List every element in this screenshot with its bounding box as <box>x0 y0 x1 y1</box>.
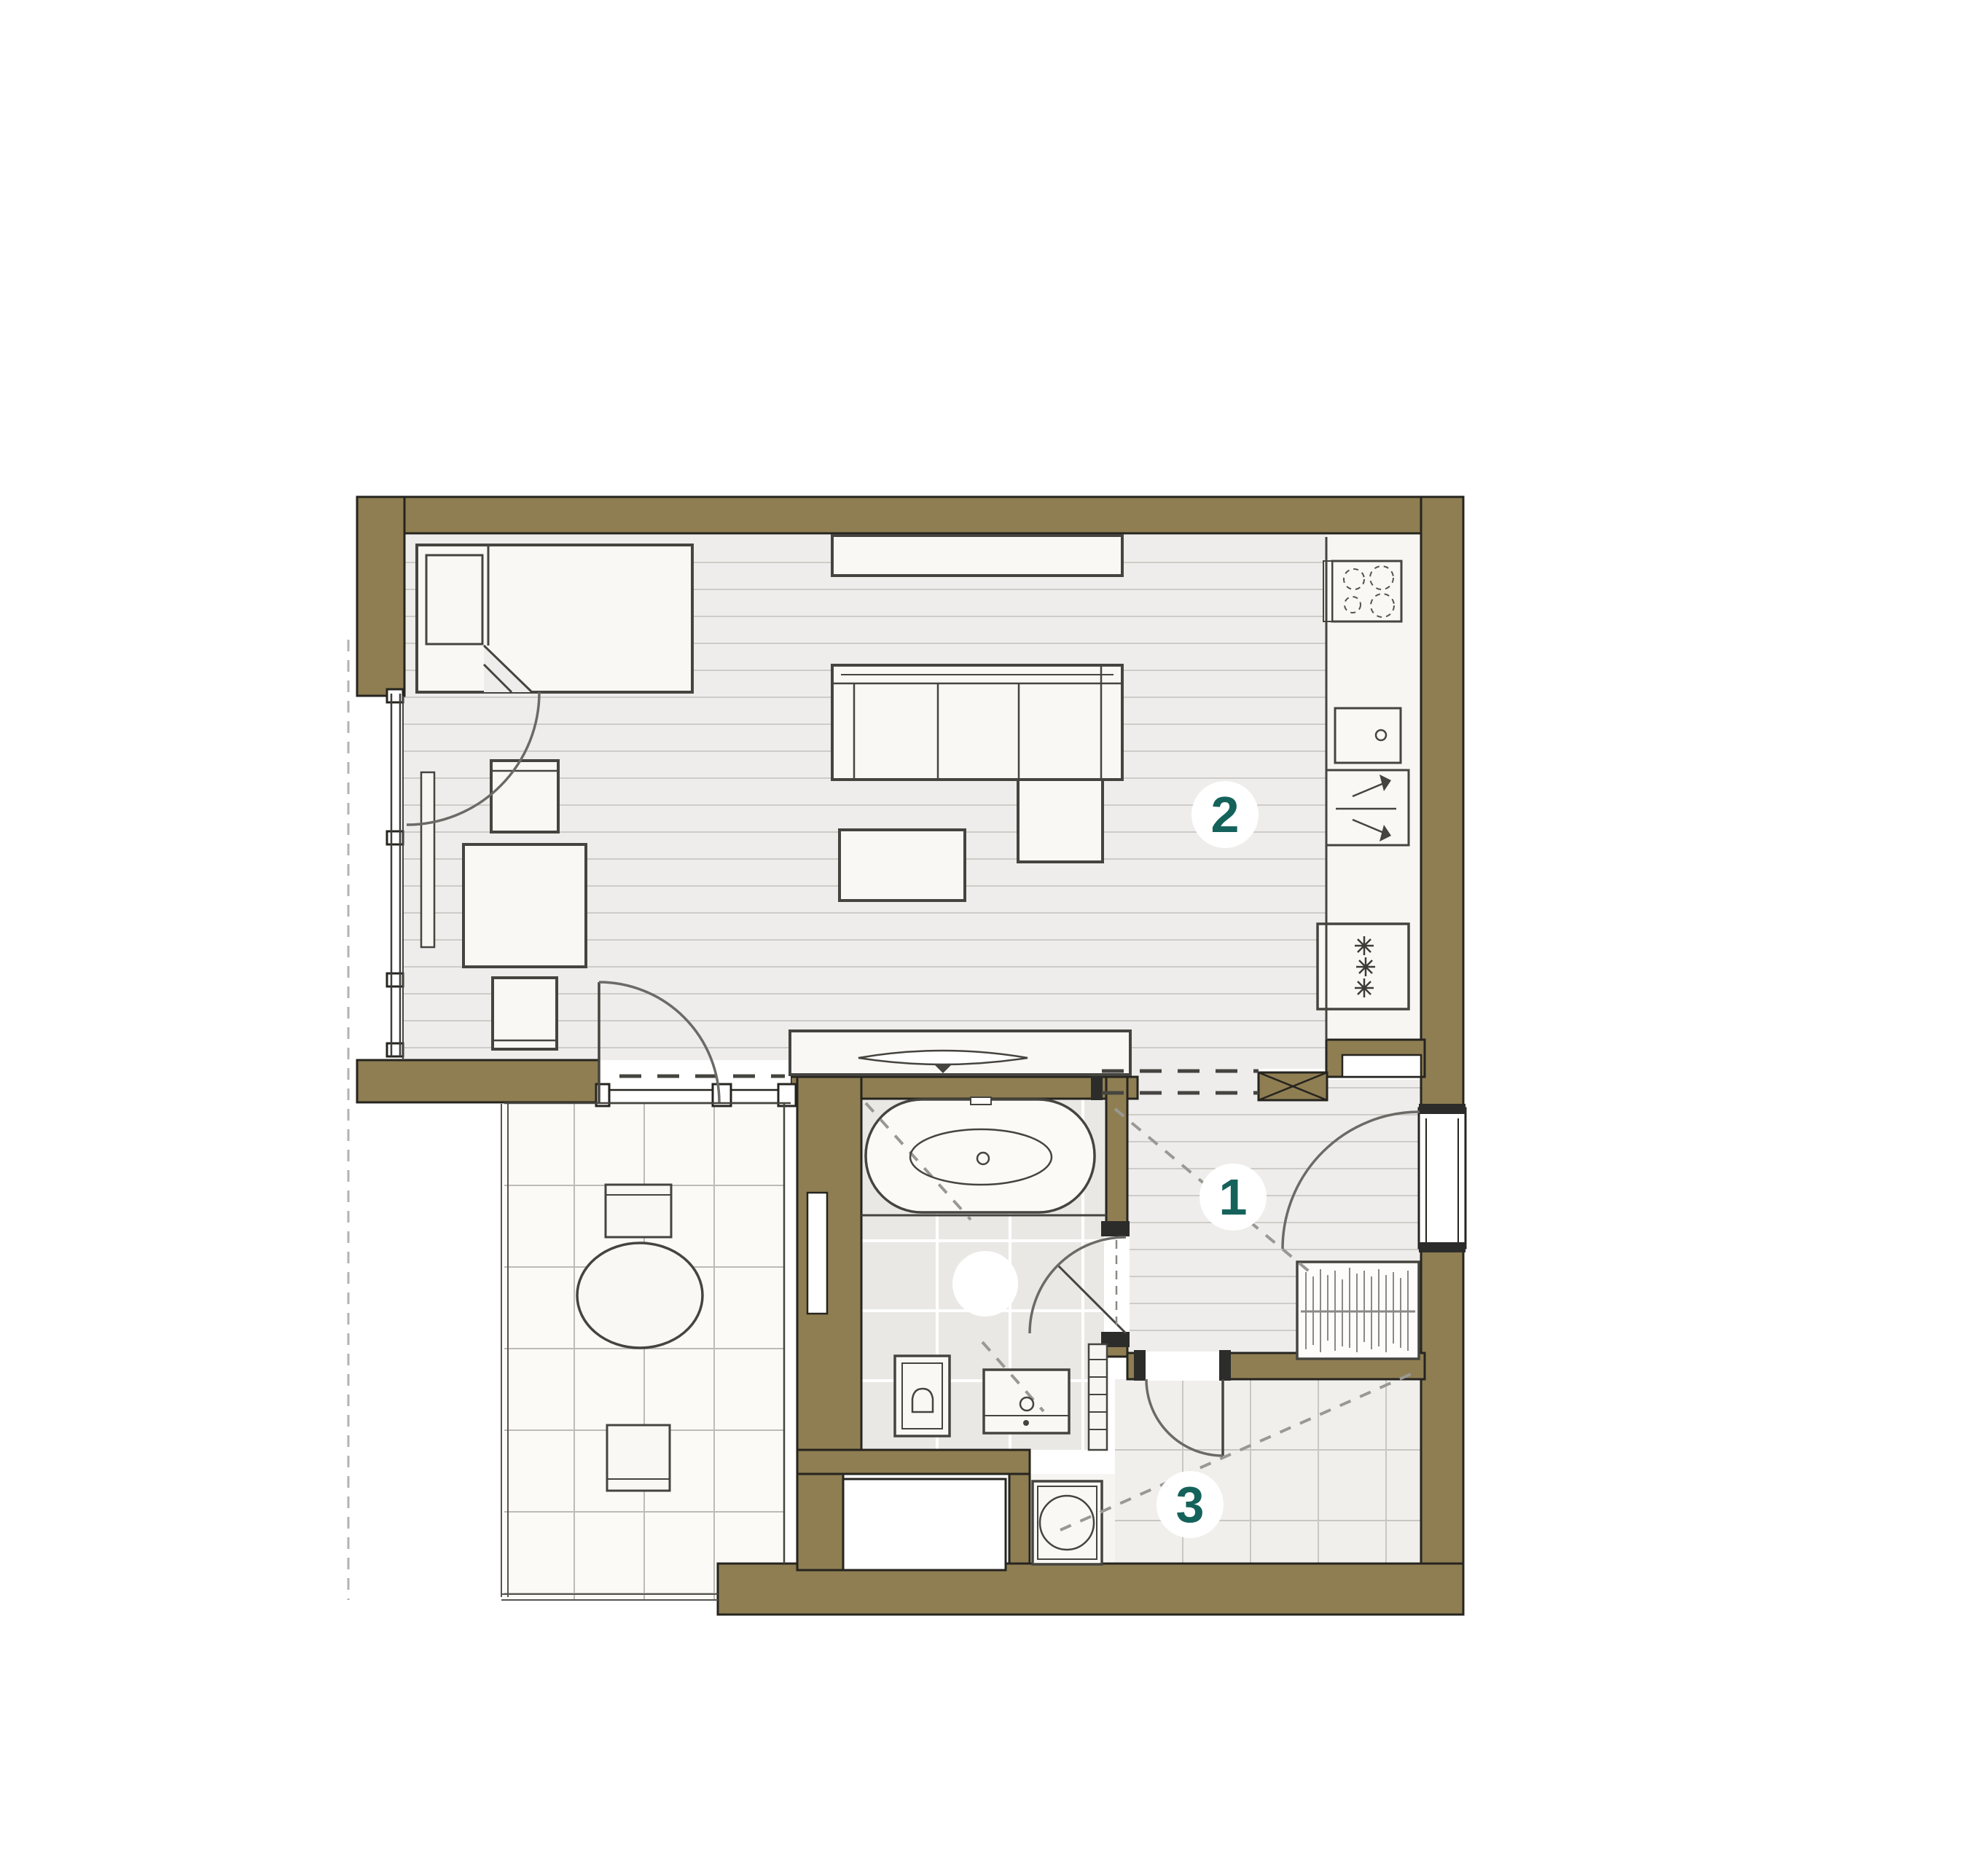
storage-door-post <box>1219 1350 1231 1381</box>
coffee-table <box>840 830 965 901</box>
terrace-table <box>577 1243 703 1348</box>
pocket-duct <box>807 1193 827 1314</box>
bath-door-post <box>1101 1221 1130 1236</box>
floor-plan: 213 <box>0 0 1988 1871</box>
sofa-chaise <box>1018 780 1103 862</box>
wall-top <box>357 497 1463 533</box>
wall-bathroom-bottom <box>797 1450 1030 1474</box>
room-label-2: 2 <box>1211 786 1240 843</box>
room-label-1: 1 <box>1219 1169 1248 1225</box>
storage-door-post <box>1134 1350 1146 1381</box>
radiator-left <box>421 772 434 947</box>
wall-bathroom-right-upper <box>1106 1077 1127 1236</box>
hall-window-frame <box>1419 1242 1465 1252</box>
dining-chair-bottom <box>493 978 557 1049</box>
wall-niche <box>1342 1055 1421 1077</box>
wall-living-bottom-left <box>357 1060 599 1102</box>
wall-void <box>843 1479 1006 1570</box>
toilet <box>895 1356 950 1436</box>
room-label-3: 3 <box>1176 1476 1205 1533</box>
terrace-chair-top <box>606 1185 671 1237</box>
terrace-door-glazing <box>605 1090 793 1103</box>
top-shelf <box>832 536 1122 576</box>
stove-side-strip <box>1323 561 1332 621</box>
hall-window-frame <box>1419 1104 1465 1114</box>
bathtub <box>866 1099 1095 1212</box>
dishwasher <box>1326 770 1409 845</box>
vanity-dot <box>1023 1420 1029 1426</box>
wall-left-upper <box>357 497 404 696</box>
wall-void-left <box>797 1474 843 1570</box>
ceiling-lamp <box>952 1251 1018 1317</box>
tub-faucet <box>971 1097 991 1105</box>
washing-machine <box>1033 1481 1102 1564</box>
wall-utility-jog <box>1009 1474 1030 1564</box>
bed-pillow <box>426 555 482 644</box>
storage-room-floor <box>1115 1379 1421 1563</box>
storage-door-gap <box>1145 1352 1219 1381</box>
stove <box>1332 561 1401 621</box>
terrace-chair-bottom <box>607 1425 670 1491</box>
sofa <box>832 665 1122 780</box>
dining-table <box>463 844 586 967</box>
kitchen-sink <box>1335 708 1401 763</box>
wall-right <box>1421 497 1463 1615</box>
